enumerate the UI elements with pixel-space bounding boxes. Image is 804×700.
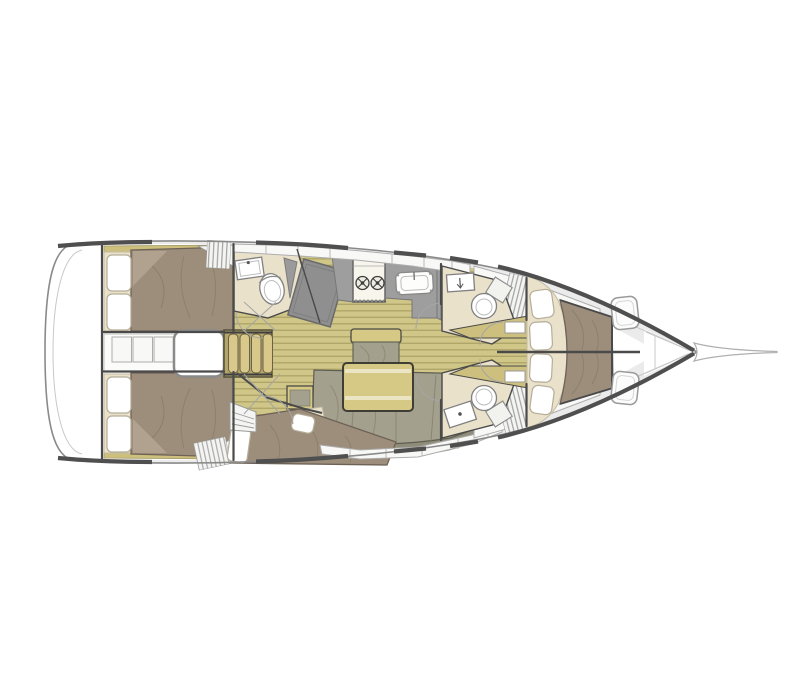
table-leaf-line [345,369,411,373]
stove [353,259,386,302]
cabinet-cell [154,337,174,362]
toe-rail-segment [394,253,426,256]
bowsprit [694,343,777,361]
pillow [107,377,131,413]
companionway-steps [224,330,273,377]
table-leaf-line [345,396,411,400]
door-leaf [505,322,525,333]
pillow [529,289,555,320]
engine-compartment [104,331,224,377]
pillow [227,427,252,463]
saloon-bench [351,329,401,365]
aft-cabin-starboard [103,372,233,470]
cabinet-cell [133,337,153,362]
pillow [529,321,552,350]
pillow [107,255,131,291]
washbasin [235,257,264,280]
door-leaf [505,371,525,382]
pillow [529,353,552,382]
washbasin [446,273,474,292]
burner [356,277,369,290]
toe-rail-segment [394,449,426,452]
galley-sink [395,271,433,295]
engine-hatch [174,331,224,377]
pillow [107,416,131,452]
cabinet-cell [112,337,132,362]
yacht-floorplan-page: Sailing yacht interior layout — top-down… [0,0,804,700]
pillow [107,294,131,330]
yacht-floorplan: Sailing yacht interior layout — top-down… [0,0,804,700]
burner [371,277,384,290]
pillow [529,385,555,416]
saloon-table [343,363,413,411]
louver-locker-aft-top [206,240,230,268]
